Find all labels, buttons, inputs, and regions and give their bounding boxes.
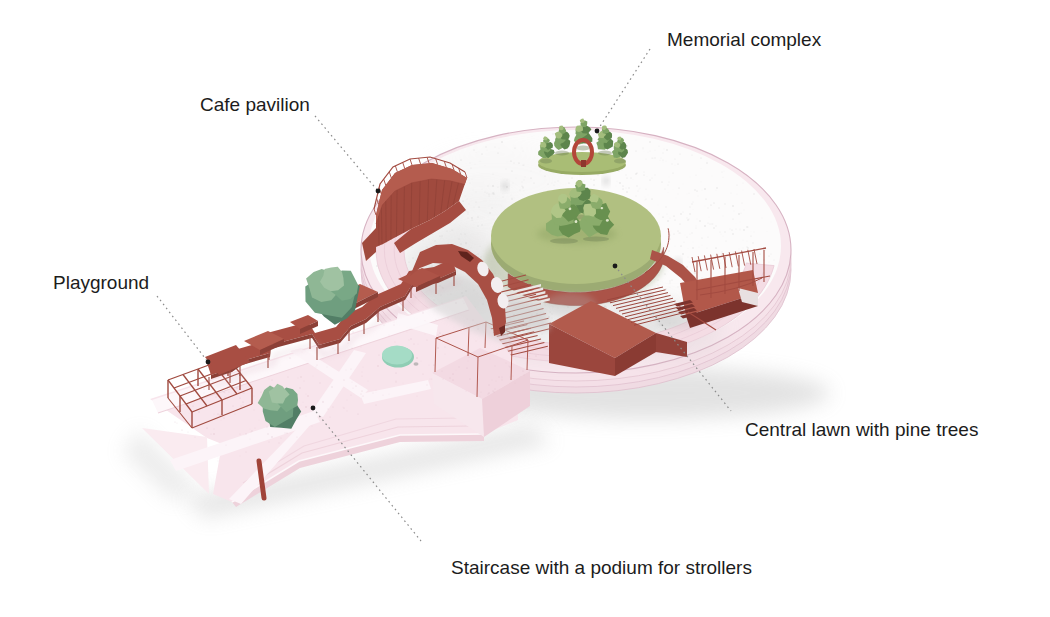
svg-text:Central lawn with pine trees: Central lawn with pine trees (745, 419, 978, 440)
svg-text:Cafe pavilion: Cafe pavilion (200, 94, 310, 115)
svg-text:Staircase with a podium for st: Staircase with a podium for strollers (451, 557, 752, 578)
svg-text:Memorial complex: Memorial complex (667, 29, 822, 50)
svg-text:Playground: Playground (53, 272, 149, 293)
